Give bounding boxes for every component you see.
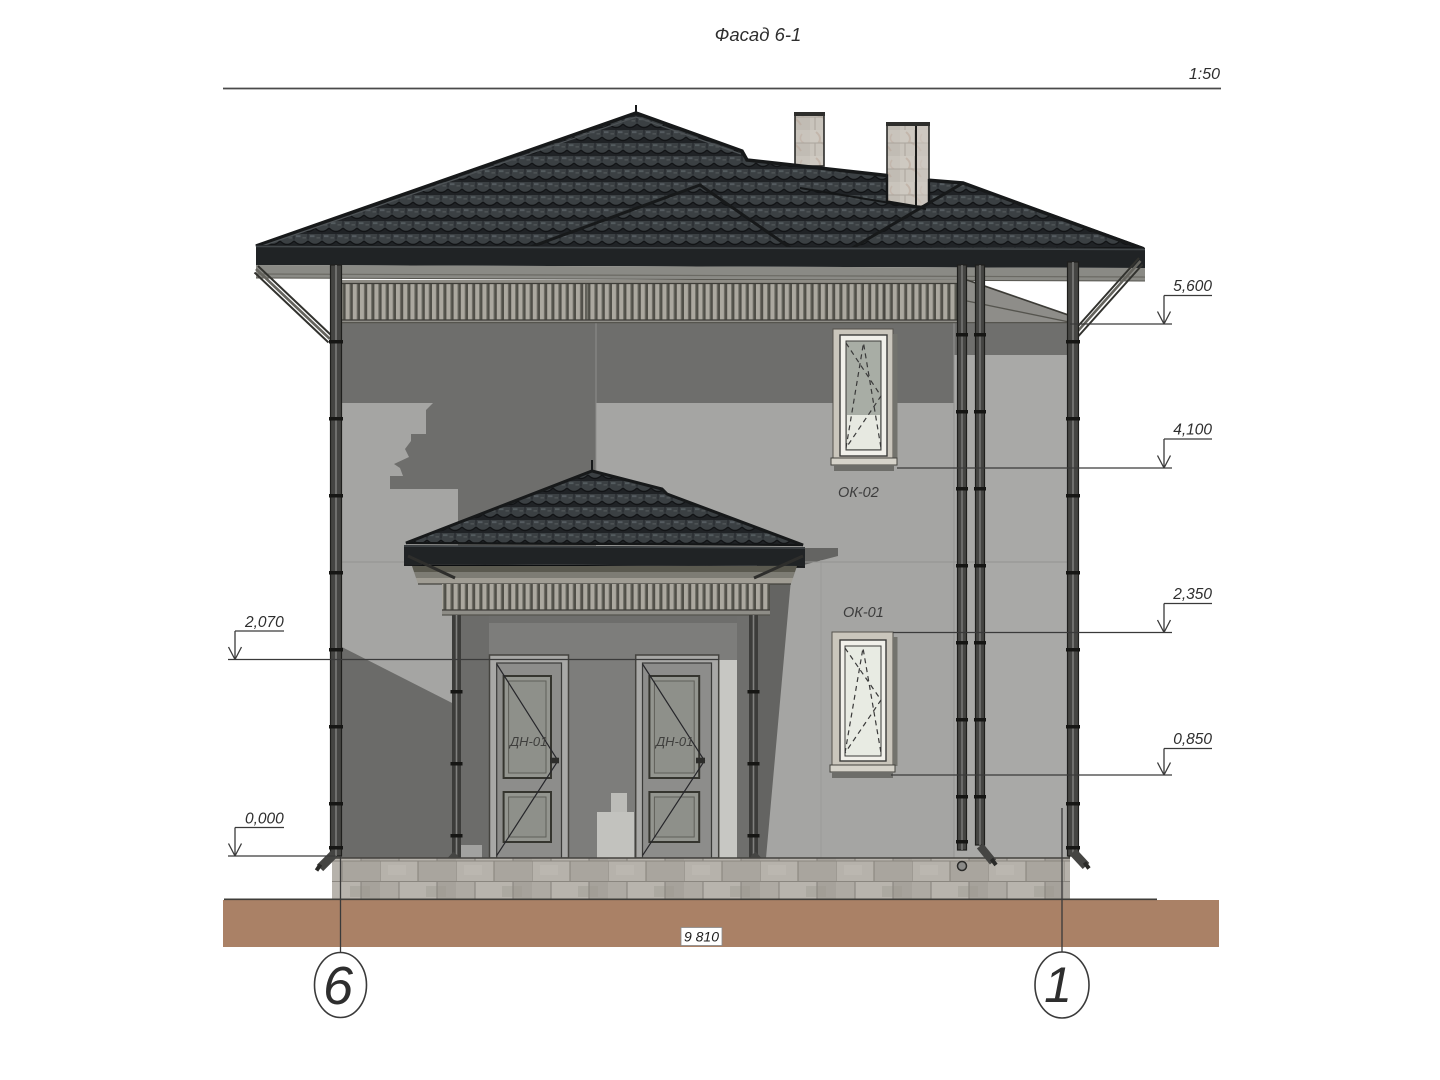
svg-text:2,070: 2,070 <box>244 614 284 631</box>
svg-text:5,600: 5,600 <box>1173 278 1212 295</box>
svg-text:0,000: 0,000 <box>245 811 284 828</box>
svg-text:ДН-01: ДН-01 <box>654 734 693 749</box>
svg-text:0,850: 0,850 <box>1173 731 1212 748</box>
svg-text:6: 6 <box>323 956 354 1016</box>
svg-text:ДН-01: ДН-01 <box>508 734 547 749</box>
svg-text:9 810: 9 810 <box>684 929 719 945</box>
svg-text:ОК-01: ОК-01 <box>843 605 884 621</box>
svg-text:ОК-02: ОК-02 <box>838 485 879 501</box>
svg-text:1: 1 <box>1044 957 1072 1013</box>
svg-text:2,350: 2,350 <box>1172 586 1212 603</box>
svg-text:Фасад 6-1: Фасад 6-1 <box>715 24 802 45</box>
svg-text:1:50: 1:50 <box>1189 66 1220 83</box>
svg-text:4,100: 4,100 <box>1173 422 1212 439</box>
